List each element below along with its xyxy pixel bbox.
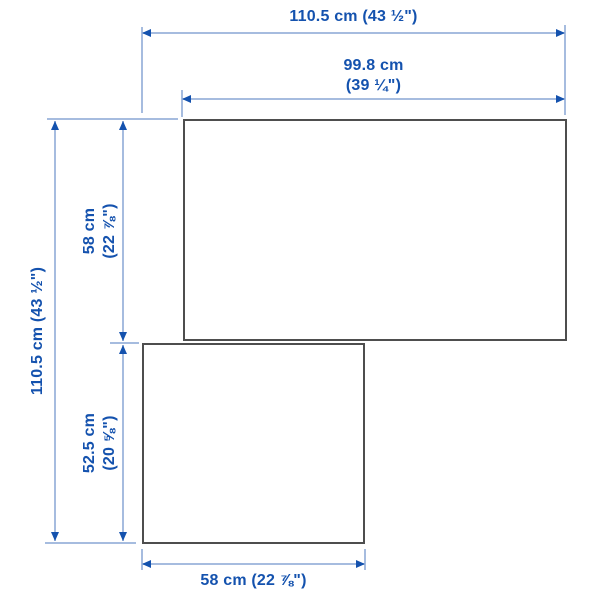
dimension-line-total-width	[142, 32, 565, 34]
dimension-label-lower-height-cm: 52.5 cm	[80, 413, 100, 473]
dimension-label-upper-height-cm: 58 cm	[80, 203, 100, 258]
dimension-line-total-height	[54, 121, 56, 541]
dimension-label-upper-width-cm: 99.8 cm	[182, 56, 565, 76]
dimension-label-upper-height-inch: (22 ⅞")	[100, 203, 120, 258]
arrowhead-left-icon	[142, 560, 151, 568]
dimension-line-lower-width	[142, 563, 365, 565]
extension-line-bottom-heights	[45, 542, 136, 544]
extension-line-mid-heights	[110, 342, 139, 344]
arrowhead-left-icon	[142, 29, 151, 37]
upper-unit-outline	[183, 119, 567, 341]
dimension-label-lower-width: 58 cm (22 ⅞")	[142, 571, 365, 591]
arrowhead-right-icon	[356, 560, 365, 568]
dimension-line-upper-height	[122, 121, 124, 341]
arrowhead-down-icon	[119, 332, 127, 341]
dimension-label-lower-height-inch: (20 ⅝")	[100, 413, 120, 473]
dimension-label-upper-height: 58 cm (22 ⅞")	[80, 203, 120, 258]
arrowhead-left-icon	[182, 95, 191, 103]
arrowhead-up-icon	[119, 345, 127, 354]
dimension-line-lower-height	[122, 345, 124, 541]
arrowhead-up-icon	[51, 121, 59, 130]
arrowhead-down-icon	[51, 532, 59, 541]
product-dimension-diagram: 110.5 cm (43 ½") 99.8 cm (39 ¼") 110.5 c…	[0, 0, 600, 600]
dimension-label-total-width: 110.5 cm (43 ½")	[142, 7, 565, 27]
arrowhead-right-icon	[556, 95, 565, 103]
dimension-label-total-height: 110.5 cm (43 ½")	[28, 267, 48, 395]
dimension-label-upper-width-inch: (39 ¼")	[182, 76, 565, 96]
extension-line-top-heights	[47, 118, 178, 120]
dimension-label-lower-height: 52.5 cm (20 ⅝")	[80, 413, 120, 473]
extension-line-left-total-width	[141, 27, 143, 113]
lower-unit-outline	[142, 343, 365, 544]
arrowhead-up-icon	[119, 121, 127, 130]
arrowhead-down-icon	[119, 532, 127, 541]
dimension-line-upper-width	[182, 98, 565, 100]
arrowhead-right-icon	[556, 29, 565, 37]
dimension-label-upper-width: 99.8 cm (39 ¼")	[182, 56, 565, 96]
